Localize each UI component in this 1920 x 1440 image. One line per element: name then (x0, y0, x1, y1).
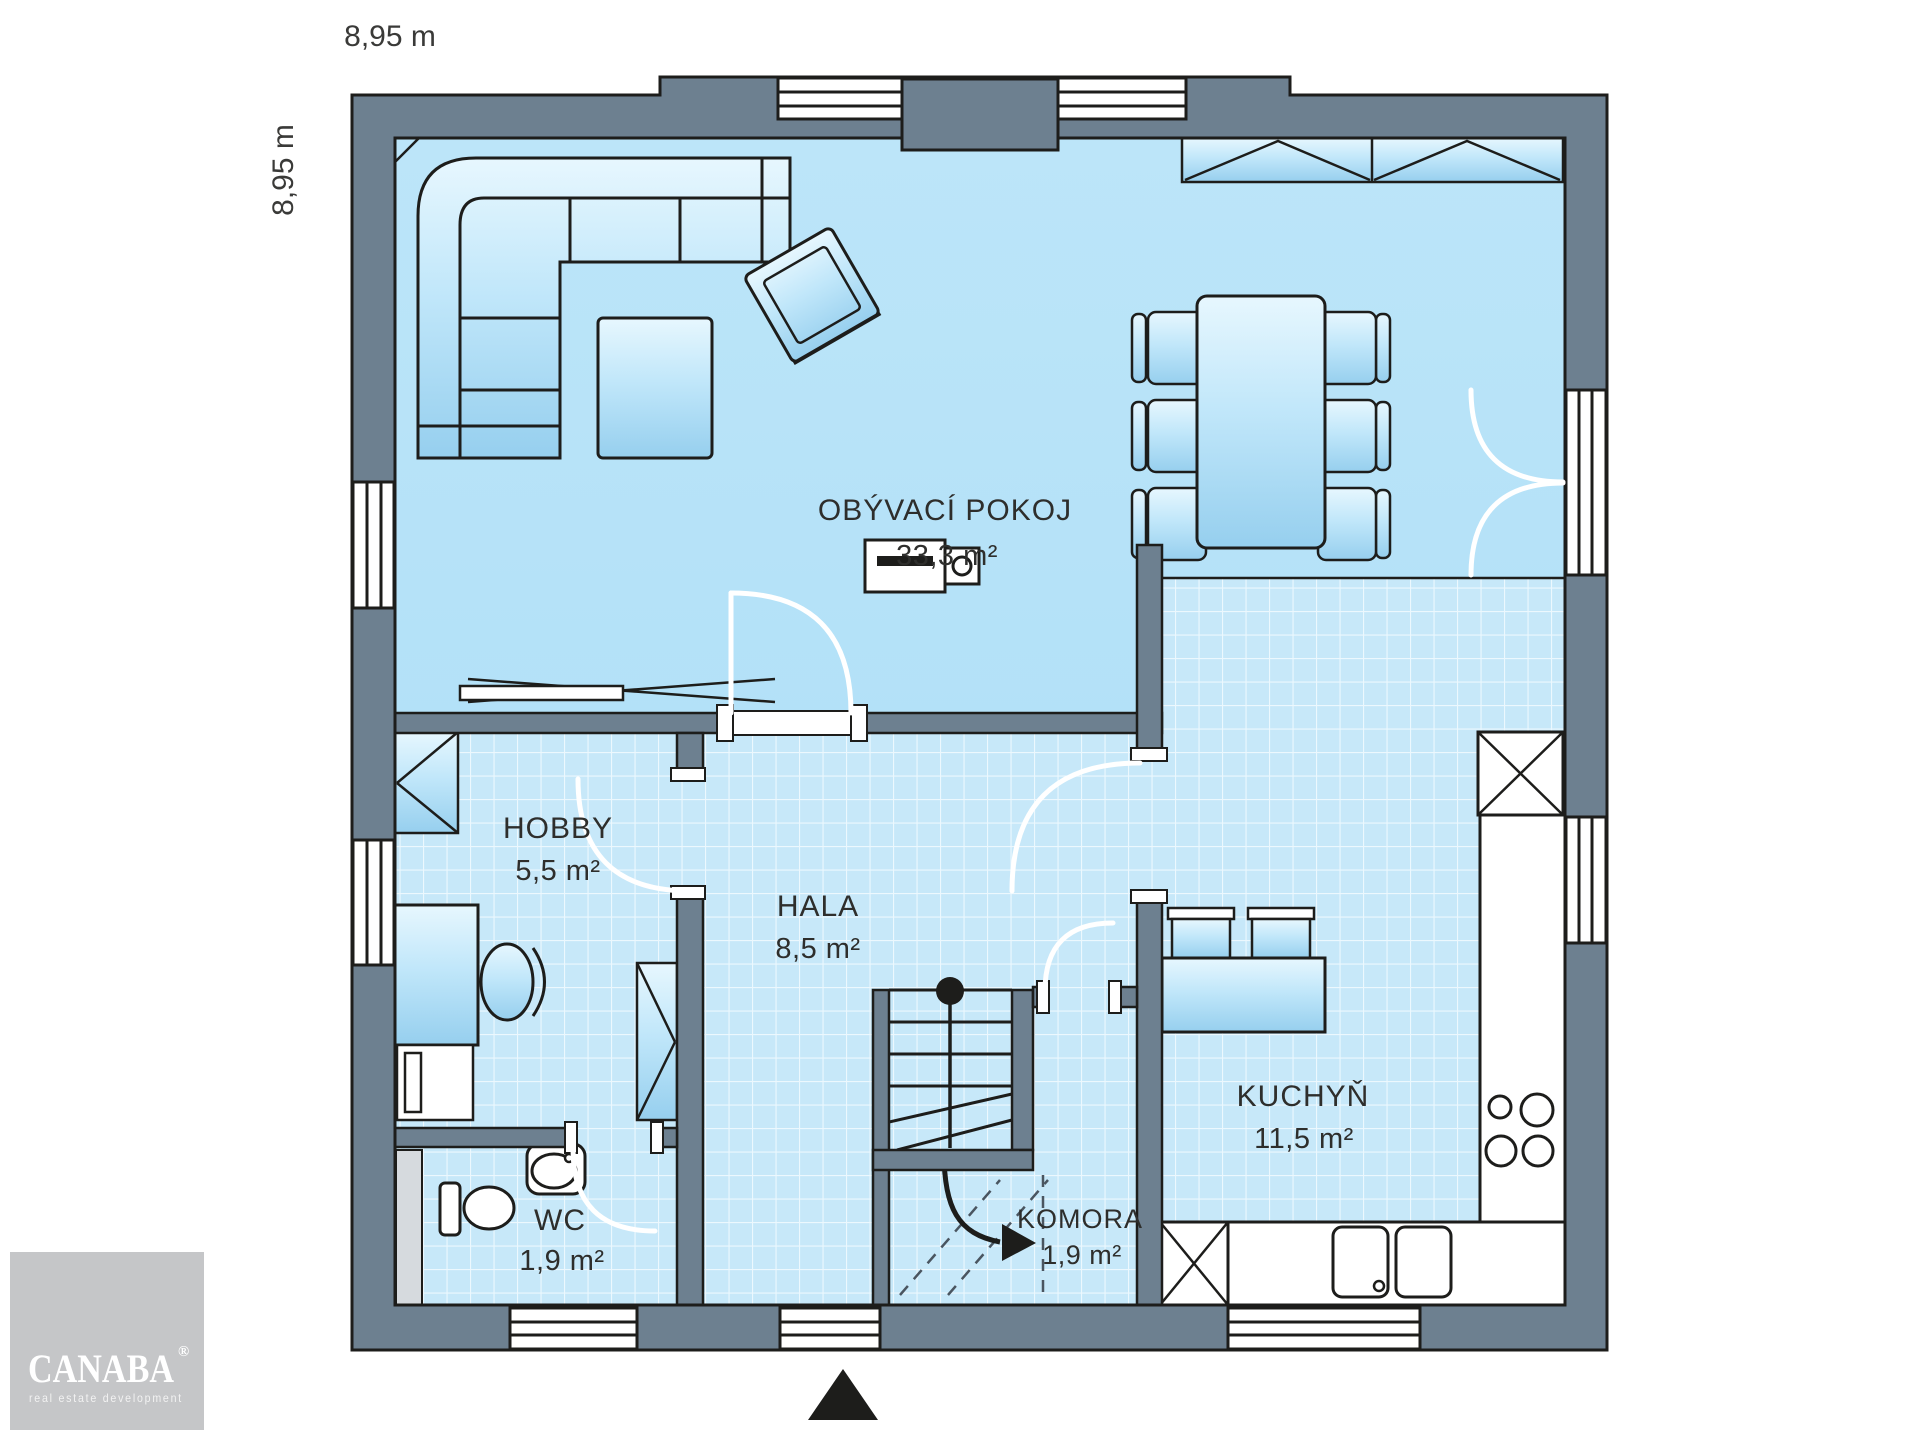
brand-logo: CANABA ® real estate development (10, 1252, 204, 1430)
floor-plan-page: OBÝVACÍ POKOJ 33,3 m² HOBBY 5,5 m² HALA … (0, 0, 1920, 1440)
bar-stool (1248, 908, 1314, 958)
stair-wall-left (873, 990, 889, 1305)
room-label-komora: KOMORA (1017, 1204, 1143, 1234)
dining-table (1197, 296, 1325, 548)
room-label-obyvaci-pokoj: OBÝVACÍ POKOJ (818, 494, 1072, 527)
entrance-door (780, 1308, 880, 1349)
room-area-obyvaci-pokoj: 33,3 m² (896, 540, 998, 572)
window-left-hobby (353, 840, 394, 965)
stair-wall-right (1012, 990, 1033, 1150)
window-top-1 (778, 78, 902, 119)
room-label-hala: HALA (777, 890, 859, 923)
dining-chairs-right (1318, 312, 1390, 560)
window-bottom-kitchen (1228, 1308, 1420, 1349)
dimension-height: 8,95 m (267, 124, 300, 216)
room-label-kuchyn: KUCHYŇ (1237, 1080, 1370, 1113)
wardrobe-top-right (1182, 138, 1563, 182)
room-area-wc: 1,9 m² (519, 1245, 604, 1277)
logo-brand-text: CANABA (28, 1346, 174, 1391)
room-area-hala: 8,5 m² (775, 933, 860, 965)
window-bottom-wc (510, 1308, 637, 1349)
room-area-komora: 1,9 m² (1042, 1240, 1122, 1270)
stair-newel (936, 977, 964, 1005)
stair-wall-bottom (873, 1150, 1033, 1170)
bar-stool (1168, 908, 1234, 958)
toilet (440, 1183, 514, 1235)
logo-tagline: real estate development (29, 1391, 183, 1405)
hobby-cabinet (397, 1045, 473, 1120)
wall-pier (902, 79, 1058, 150)
window-right-kitchen (1566, 817, 1606, 943)
logo-registered-mark: ® (178, 1344, 189, 1360)
balcony-door-opening (1566, 390, 1606, 575)
hobby-desk (395, 905, 478, 1045)
duct-shaft (396, 1150, 422, 1305)
door-threshold (733, 711, 851, 735)
room-area-kuchyn: 11,5 m² (1254, 1123, 1354, 1155)
armchair (598, 318, 712, 458)
closet-open (395, 732, 458, 833)
hobby-wardrobe (637, 963, 677, 1120)
room-label-wc: WC (534, 1204, 586, 1237)
dimension-width: 8,95 m (344, 20, 436, 53)
kitchen-island (1162, 958, 1325, 1032)
room-label-hobby: HOBBY (503, 812, 613, 845)
window-top-2 (1058, 78, 1186, 119)
room-area-hobby: 5,5 m² (515, 855, 600, 887)
window-left-living (353, 482, 394, 608)
appliance-box (1160, 1222, 1228, 1305)
floor-plan-svg: OBÝVACÍ POKOJ 33,3 m² HOBBY 5,5 m² HALA … (0, 0, 1920, 1440)
entrance-marker-triangle (808, 1369, 878, 1420)
dining-chairs-left (1132, 312, 1206, 560)
tall-cabinet (1478, 732, 1563, 815)
